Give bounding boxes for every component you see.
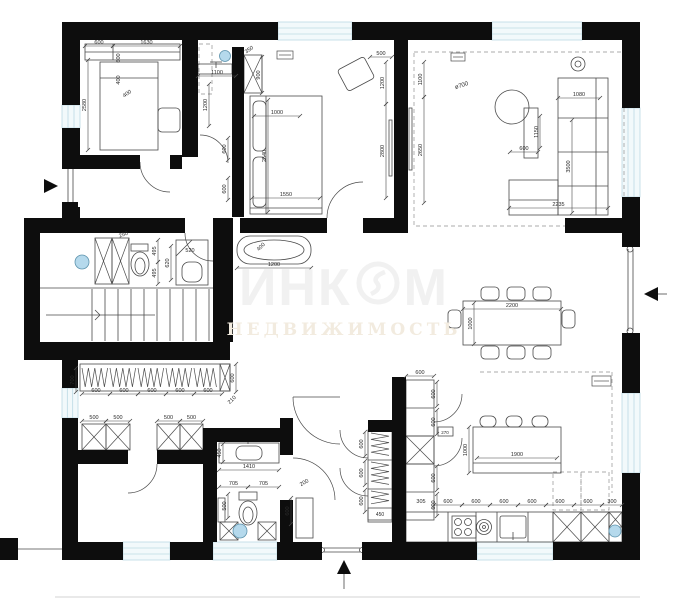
light-fixture-blue <box>233 524 247 538</box>
furniture-outline <box>507 346 525 359</box>
furniture-outline <box>182 262 202 282</box>
wall-segment <box>157 450 203 464</box>
dim-label: 1200 <box>203 99 209 111</box>
annotation-label: 270 <box>441 430 449 435</box>
furniture-outline <box>480 416 496 427</box>
wall-segment <box>363 218 394 233</box>
furniture-outline <box>448 310 461 328</box>
wall-segment <box>553 542 640 560</box>
wall-segment <box>394 40 408 218</box>
dim-label: 600 <box>443 499 452 505</box>
dim-label: 1410 <box>243 464 255 470</box>
wall-segment <box>394 218 408 233</box>
wall-segment <box>362 542 477 560</box>
dim-label: 600 <box>203 388 212 394</box>
annotation-label: 305 <box>416 499 425 505</box>
dim-label: 1100 <box>418 74 424 86</box>
dim-label: 600 <box>222 184 228 193</box>
furniture-outline <box>389 120 392 176</box>
dim-label: 600 <box>431 473 437 482</box>
dim-label: 600 <box>119 388 128 394</box>
dim-label: 1550 <box>280 192 292 198</box>
dim-label: 1000 <box>463 444 469 456</box>
dim-label: 600 <box>431 389 437 398</box>
entry-arrow <box>644 287 658 301</box>
wall-segment <box>240 218 327 233</box>
dim-label: 1080 <box>573 92 585 98</box>
wall-segment <box>622 22 640 108</box>
window <box>62 105 80 128</box>
furniture-outline <box>296 498 313 538</box>
dim-label: 2650 <box>418 144 424 156</box>
dim-label: 600 <box>222 144 228 153</box>
furniture-outline <box>532 416 548 427</box>
dim-label: 300 <box>607 499 616 505</box>
floor-plan-drawing: 6001630258011001200900100025401550600600… <box>0 0 685 600</box>
wall-segment <box>213 218 233 342</box>
dim-label: 500 <box>113 415 122 421</box>
furniture-outline <box>253 157 266 207</box>
fixture-ellipse <box>131 252 149 276</box>
dim-label: 600 <box>230 373 236 382</box>
dim-label: 600 <box>527 499 536 505</box>
dim-label: 1200 <box>268 262 280 268</box>
window <box>477 542 553 560</box>
dim-label: 600 <box>471 499 480 505</box>
light-fixture-blue <box>75 255 89 269</box>
furniture-outline <box>100 62 158 150</box>
door-arc <box>293 458 335 500</box>
dim-label: 1000 <box>468 317 474 329</box>
dim-label: 2580 <box>82 99 88 111</box>
dim-label: 2200 <box>506 303 518 309</box>
wall-segment <box>78 450 128 464</box>
dim-label: 600 <box>431 417 437 426</box>
dim-label: 600 <box>359 439 365 448</box>
wall-segment <box>24 218 40 360</box>
armchair-outline <box>337 56 375 91</box>
wall-segment <box>62 542 123 560</box>
dim-label: 600 <box>175 388 184 394</box>
door-arc <box>140 162 170 192</box>
detail-line <box>95 310 100 315</box>
dim-label: 705 <box>229 481 238 487</box>
annotation-label: 350 <box>244 45 255 55</box>
annotation-label: 200 <box>299 478 310 488</box>
dim-label: 600 <box>519 146 528 152</box>
door-arc <box>434 438 462 466</box>
wall-segment <box>368 420 392 432</box>
dim-label: 1630 <box>140 40 152 46</box>
annotation-label: ø700 <box>454 81 469 91</box>
dim-label: 600 <box>583 499 592 505</box>
door-arc <box>128 464 157 493</box>
furniture-outline <box>558 78 608 215</box>
furniture-outline <box>533 346 551 359</box>
furniture-outline <box>236 446 262 460</box>
furniture-outline <box>253 101 266 151</box>
dim-label: 600 <box>94 40 103 46</box>
fixture-circle <box>495 90 529 124</box>
dim-label: 500 <box>222 501 228 510</box>
dim-label: 495 <box>152 268 158 277</box>
window <box>622 108 640 197</box>
wall-segment <box>62 22 80 105</box>
dim-label: 600 <box>91 388 100 394</box>
dim-label: 600 <box>359 468 365 477</box>
wall-segment <box>622 333 640 393</box>
dim-label: 1100 <box>211 70 223 76</box>
wall-segment <box>62 418 78 542</box>
wall-segment <box>170 155 182 169</box>
dim-label: 2235 <box>552 202 564 208</box>
dim-label: 2800 <box>380 145 386 157</box>
furniture-outline <box>481 287 499 300</box>
furniture-outline <box>473 427 561 473</box>
window <box>492 22 582 40</box>
fixture-ellipse <box>135 258 145 274</box>
wall-segment <box>62 207 80 218</box>
wall-segment <box>352 22 492 40</box>
dim-label: 600 <box>285 506 291 515</box>
wall-segment <box>622 197 640 247</box>
wall-segment <box>24 342 230 360</box>
furniture-outline <box>533 287 551 300</box>
light-fixture-blue <box>609 525 621 537</box>
wall-segment <box>232 47 244 217</box>
dim-label: 900 <box>256 70 262 79</box>
wall-segment <box>203 428 293 442</box>
dim-label: 495 <box>152 246 158 255</box>
window <box>123 542 170 560</box>
door-arc <box>434 394 462 422</box>
annotation-label: 400 <box>116 75 122 84</box>
annotation-label: 450 <box>376 512 385 518</box>
dim-label: 620 <box>165 258 171 267</box>
dim-label: 1900 <box>511 452 523 458</box>
dim-label: 450 <box>217 448 223 457</box>
dim-label: 600 <box>499 499 508 505</box>
dim-label: 600 <box>359 496 365 505</box>
wall-segment <box>182 40 198 157</box>
dim-label: 600 <box>147 388 156 394</box>
dim-label: 2540 <box>262 150 268 162</box>
floor-plan-canvas: 6001630258011001200900100025401550600600… <box>0 0 685 600</box>
wall-segment <box>277 542 322 560</box>
dim-label: 1000 <box>271 110 283 116</box>
window <box>213 542 277 560</box>
detail-line <box>95 315 100 320</box>
wall-segment <box>392 377 406 542</box>
dim-label: 1150 <box>534 126 540 138</box>
furniture-outline <box>131 244 148 251</box>
dim-label: 700 <box>70 375 76 384</box>
wall-segment <box>170 542 213 560</box>
furniture-outline <box>562 310 575 328</box>
annotation-label: 210 <box>227 395 238 406</box>
furniture-outline <box>158 108 180 132</box>
dim-label: 500 <box>89 415 98 421</box>
wall-segment <box>62 155 140 169</box>
entry-arrow <box>44 179 58 193</box>
dim-label: 600 <box>555 499 564 505</box>
dim-label: 500 <box>187 415 196 421</box>
furniture-outline <box>509 180 558 215</box>
fixture-circle <box>571 57 585 71</box>
window <box>278 22 352 40</box>
dim-label: 500 <box>376 51 385 57</box>
fixture-ellipse <box>243 507 253 523</box>
entry-arrow <box>337 560 351 574</box>
dim-label: 500 <box>164 415 173 421</box>
window <box>622 393 640 473</box>
furniture-outline <box>239 492 257 500</box>
wall-segment <box>565 218 622 233</box>
door-arc <box>293 397 340 444</box>
fixture-ellipse <box>239 501 257 525</box>
dim-label: 1200 <box>380 77 386 89</box>
furniture-outline <box>409 108 412 170</box>
wall-segment <box>24 218 185 233</box>
dim-label: 705 <box>259 481 268 487</box>
annotation-label: 600 <box>116 53 122 62</box>
furniture-outline <box>481 346 499 359</box>
furniture-outline <box>507 287 525 300</box>
annotation-label: 520 <box>185 248 194 254</box>
dim-label: 3500 <box>566 160 572 172</box>
fixture-circle <box>575 61 581 67</box>
wall-segment <box>203 428 217 542</box>
wall-segment <box>0 538 18 560</box>
wall-segment <box>62 202 78 207</box>
light-fixture-blue <box>220 51 231 62</box>
wall-segment <box>62 22 278 40</box>
dim-label: 600 <box>415 370 424 376</box>
door-arc <box>327 182 363 218</box>
furniture-outline <box>506 416 522 427</box>
